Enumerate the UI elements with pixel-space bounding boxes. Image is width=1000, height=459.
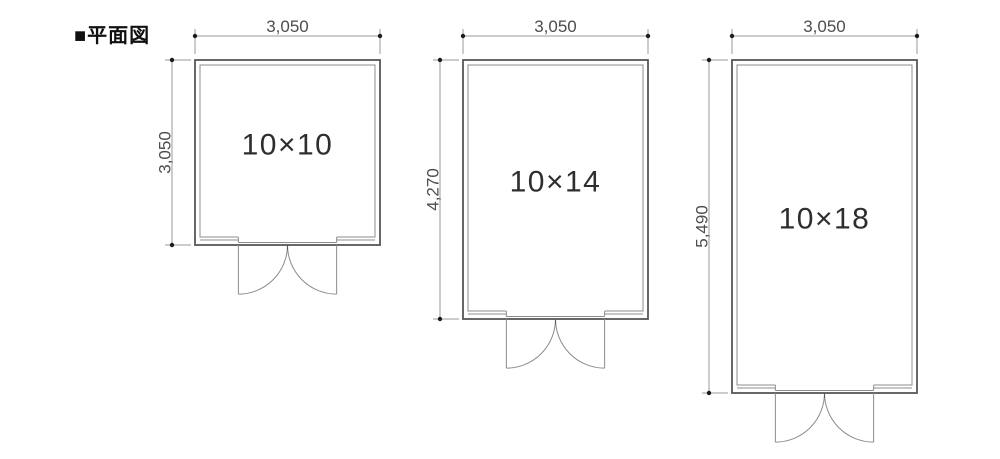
dimension-endpoint-dot (730, 34, 734, 38)
dimension-endpoint-dot (707, 391, 711, 395)
dimension-endpoint-dot (915, 34, 919, 38)
dimension-endpoint-dot (461, 34, 465, 38)
door-swing-arc-left (506, 319, 555, 368)
door-swing-arc-right (825, 393, 874, 442)
dimension-endpoint-dot (378, 34, 382, 38)
plan-10x10: 3,0503,05010×10 (156, 17, 383, 294)
floor-plan-canvas: ■平面図 3,0503,05010×103,0504,27010×143,050… (0, 0, 1000, 459)
dimension-endpoint-dot (170, 243, 174, 247)
door-swing-arc-left (238, 245, 287, 294)
unit-size-label: 10×18 (779, 203, 871, 236)
door-swing-arc-left (775, 393, 824, 442)
plan-10x14: 3,0504,27010×14 (424, 17, 651, 368)
depth-dimension-label: 3,050 (156, 131, 175, 174)
depth-dimension-label: 4,270 (424, 168, 443, 211)
door-swing-arc-right (556, 319, 605, 368)
depth-dimension-label: 5,490 (693, 205, 712, 248)
width-dimension-label: 3,050 (803, 17, 846, 36)
plan-10x18: 3,0505,49010×18 (693, 17, 920, 442)
dimension-endpoint-dot (707, 58, 711, 62)
dimension-endpoint-dot (438, 58, 442, 62)
unit-size-label: 10×10 (242, 129, 334, 162)
width-dimension-label: 3,050 (534, 17, 577, 36)
dimension-endpoint-dot (193, 34, 197, 38)
dimension-endpoint-dot (438, 317, 442, 321)
plans-drawing: 3,0503,05010×103,0504,27010×143,0505,490… (0, 0, 1000, 459)
width-dimension-label: 3,050 (266, 17, 309, 36)
unit-size-label: 10×14 (510, 166, 602, 199)
door-swing-arc-right (288, 245, 337, 294)
dimension-endpoint-dot (170, 58, 174, 62)
dimension-endpoint-dot (646, 34, 650, 38)
